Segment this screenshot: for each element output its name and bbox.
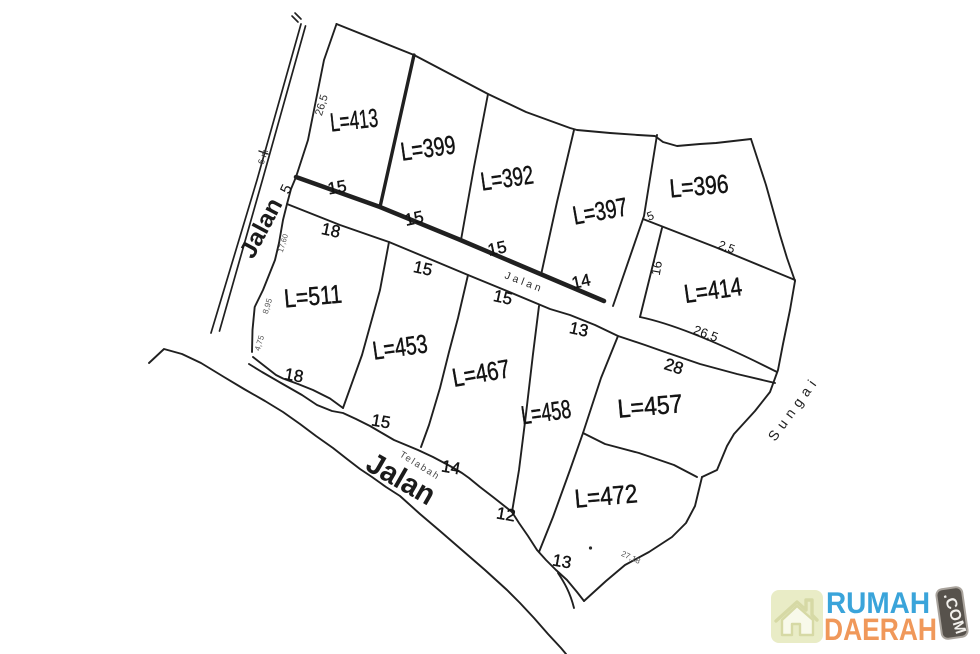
svg-text:14: 14 bbox=[440, 456, 462, 478]
svg-text:15: 15 bbox=[326, 176, 348, 198]
svg-text:L=472: L=472 bbox=[573, 478, 638, 513]
svg-text:13: 13 bbox=[568, 318, 590, 341]
svg-text:13: 13 bbox=[551, 550, 573, 572]
svg-text:L=457: L=457 bbox=[616, 388, 683, 424]
svg-text:L=511: L=511 bbox=[283, 279, 343, 314]
svg-text:14: 14 bbox=[570, 270, 592, 293]
svg-text:12: 12 bbox=[495, 503, 517, 525]
svg-text:15: 15 bbox=[370, 410, 392, 432]
svg-text:L=396: L=396 bbox=[668, 168, 729, 203]
svg-text:16: 16 bbox=[648, 260, 665, 277]
svg-text:18: 18 bbox=[283, 364, 305, 386]
svg-text:15: 15 bbox=[492, 286, 514, 309]
svg-text:15: 15 bbox=[412, 257, 434, 280]
svg-text:DAERAH: DAERAH bbox=[824, 612, 937, 647]
svg-text:18: 18 bbox=[320, 219, 342, 242]
svg-text:L=413: L=413 bbox=[329, 103, 380, 138]
svg-text:15: 15 bbox=[403, 207, 425, 230]
svg-text:15: 15 bbox=[486, 237, 508, 260]
